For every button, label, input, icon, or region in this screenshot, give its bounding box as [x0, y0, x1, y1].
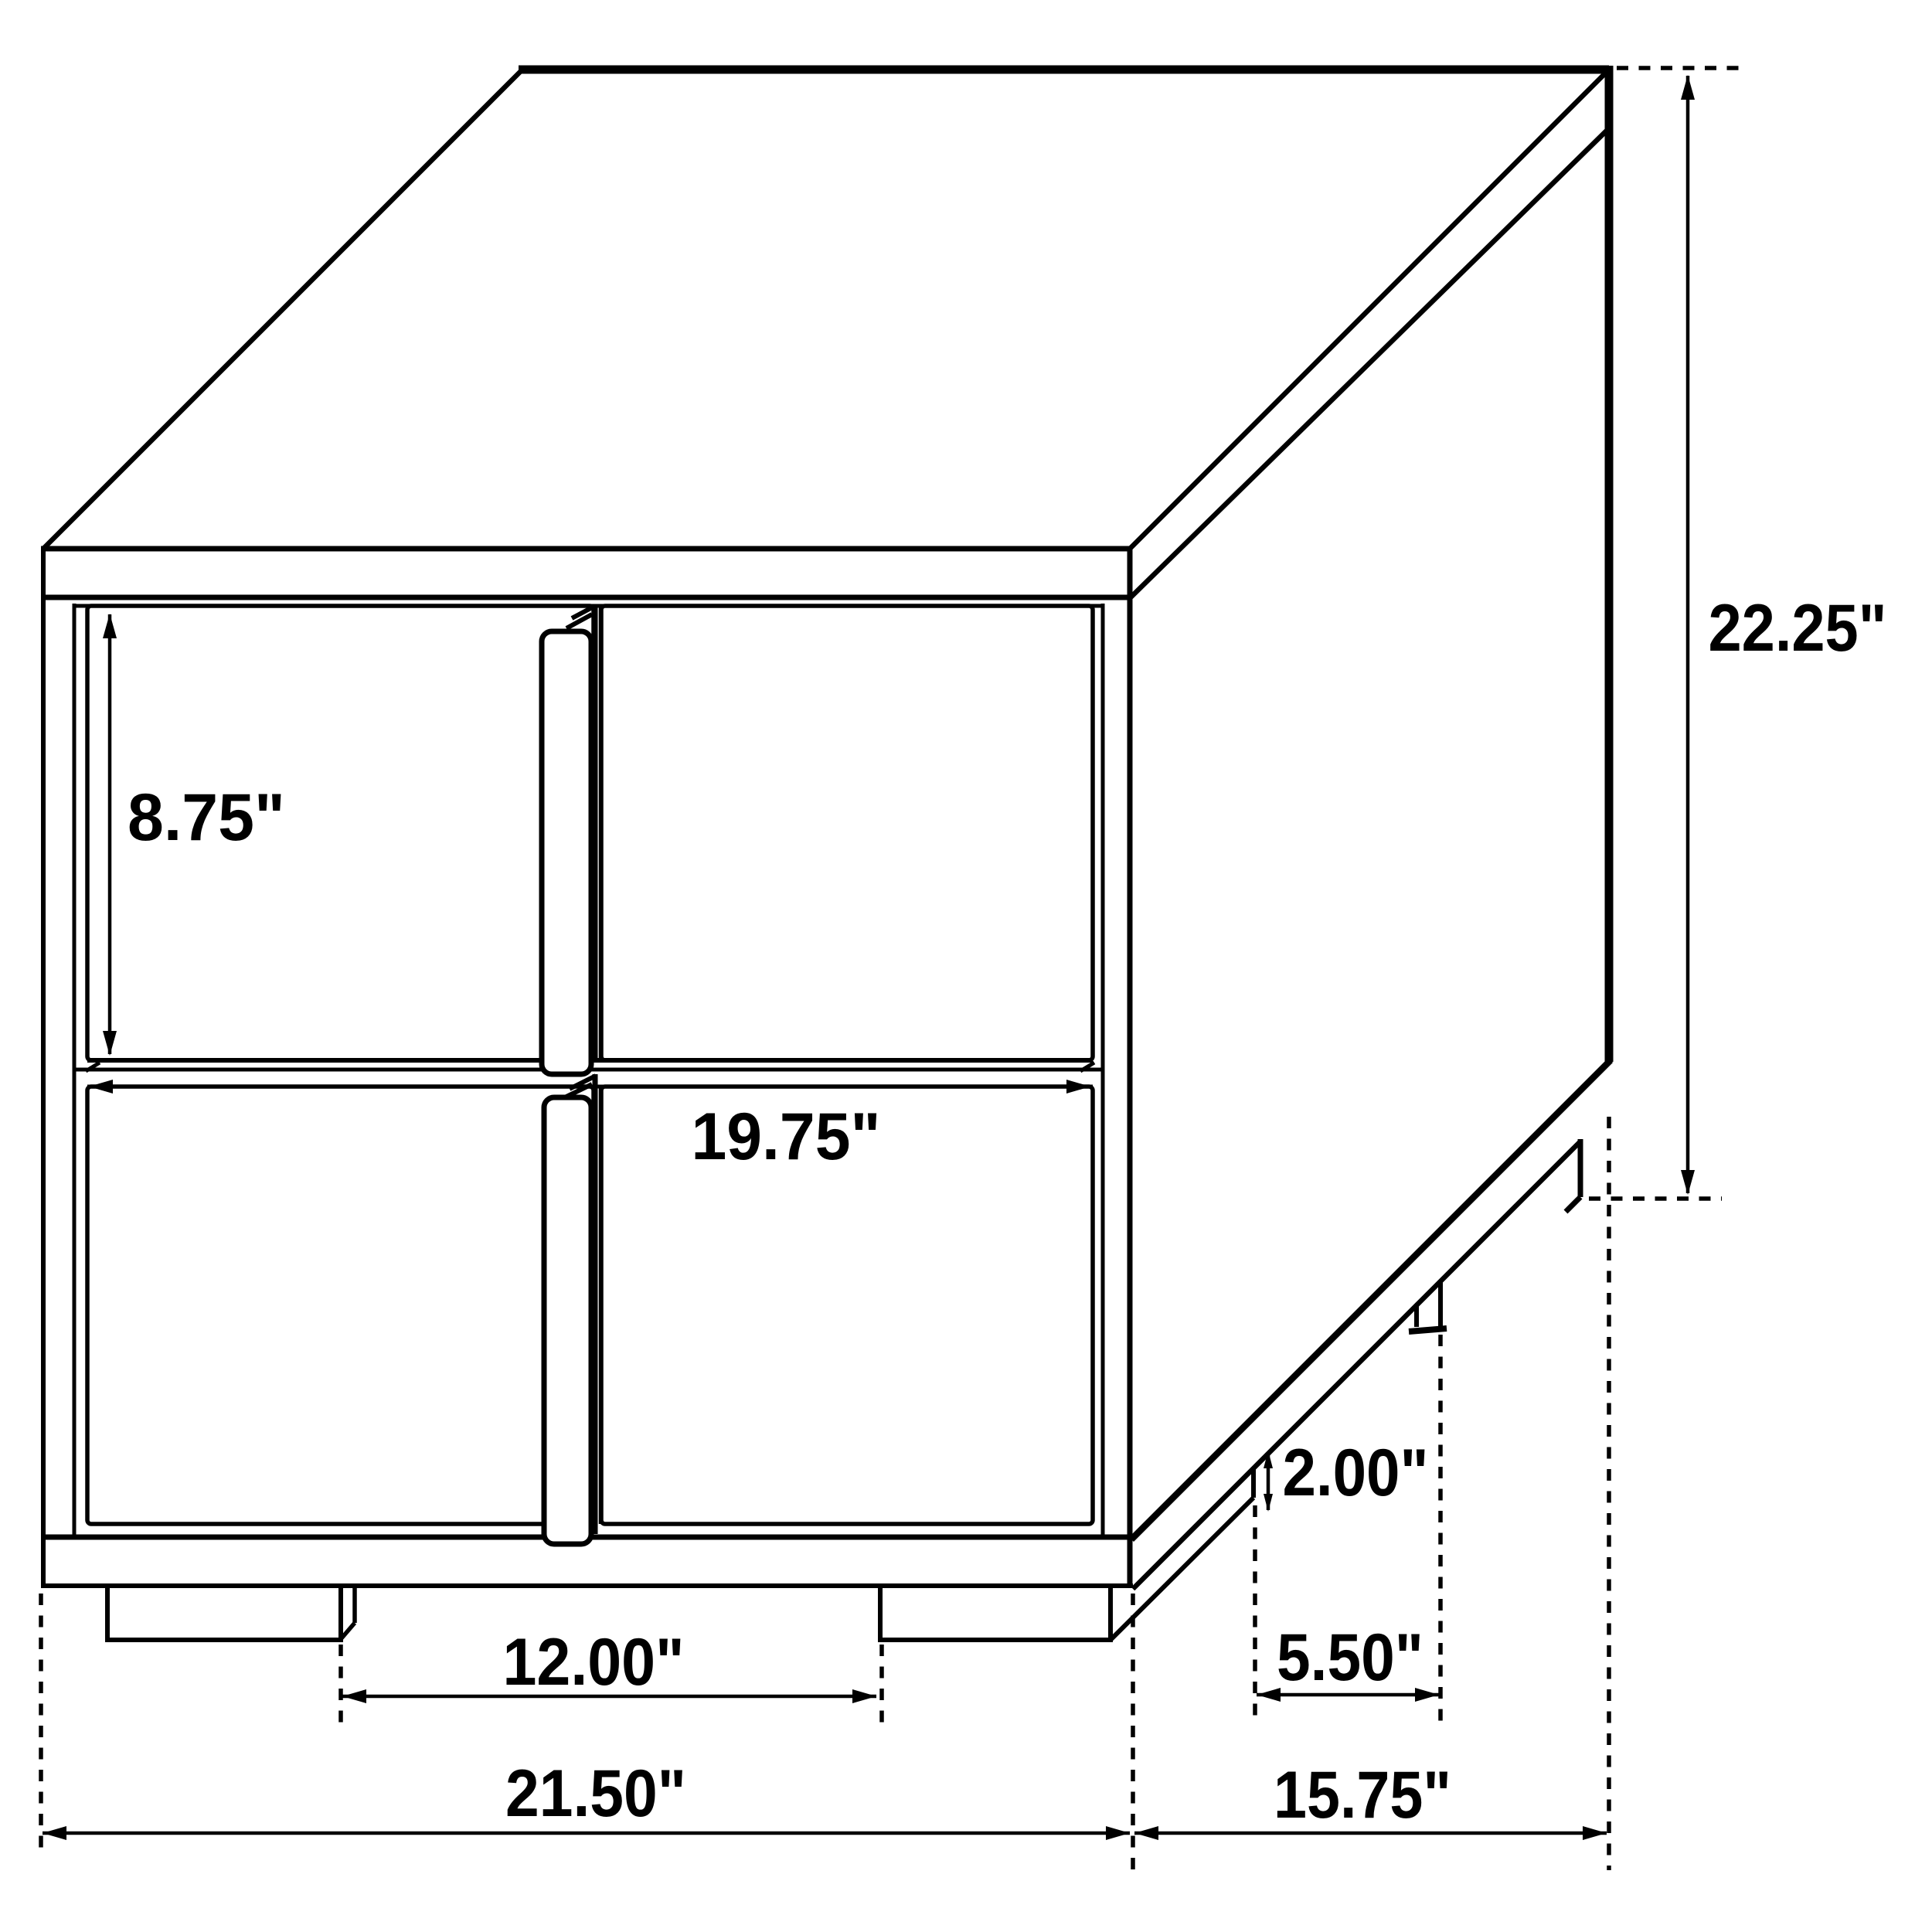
svg-text:2.00": 2.00" — [1283, 1436, 1429, 1510]
svg-text:8.75": 8.75" — [128, 781, 285, 855]
svg-text:21.50": 21.50" — [505, 1757, 686, 1831]
svg-text:22.25": 22.25" — [1709, 591, 1887, 665]
svg-text:19.75": 19.75" — [692, 1100, 881, 1174]
svg-text:5.50": 5.50" — [1277, 1621, 1423, 1695]
svg-text:12.00": 12.00" — [503, 1625, 685, 1699]
svg-text:15.75": 15.75" — [1274, 1758, 1451, 1832]
